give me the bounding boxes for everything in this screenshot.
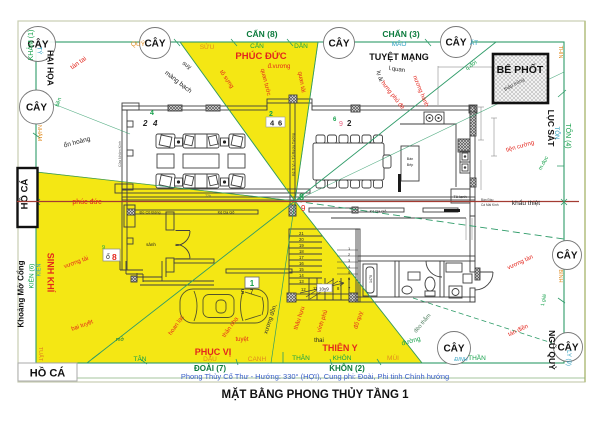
svg-text:16: 16 xyxy=(299,261,304,266)
svg-text:CÂY: CÂY xyxy=(328,37,349,50)
svg-text:10ỵ9: 10ỵ9 xyxy=(319,287,329,292)
svg-text:MÙI: MÙI xyxy=(387,353,399,362)
svg-text:DẬU: DẬU xyxy=(203,354,217,363)
svg-text:2: 2 xyxy=(347,119,352,128)
svg-text:19: 19 xyxy=(299,243,304,248)
svg-text:SỬU: SỬU xyxy=(200,42,215,51)
svg-text:BỂ PHỐT: BỂ PHỐT xyxy=(497,62,544,76)
svg-text:THÂN: THÂN xyxy=(292,353,310,362)
svg-text:MẶT BẰNG PHONG THỦY TẦNG 1: MẶT BẰNG PHONG THỦY TẦNG 1 xyxy=(222,388,410,401)
svg-text:BÍNH: BÍNH xyxy=(557,269,564,282)
svg-text:NGŨ QUỶ: NGŨ QUỶ xyxy=(547,330,558,370)
svg-text:HẠI HỌA: HẠI HỌA xyxy=(46,50,56,86)
svg-text:NHÂM: NHÂM xyxy=(36,125,43,142)
svg-text:PHÚC ĐỨC: PHÚC ĐỨC xyxy=(235,50,286,62)
svg-text:13: 13 xyxy=(299,279,304,284)
svg-text:TUYỆT MẠNG: TUYỆT MẠNG xyxy=(369,51,429,62)
svg-text:TUẤT: TUẤT xyxy=(37,347,44,362)
svg-text:12: 12 xyxy=(301,287,306,292)
svg-text:sảnh: sảnh xyxy=(146,242,156,247)
svg-text:Bàn Đầu: Bàn Đầu xyxy=(481,198,494,202)
svg-text:72h: 72h xyxy=(205,194,211,198)
svg-text:đ.vương: đ.vương xyxy=(268,64,291,70)
svg-text:HỒ CÁ: HỒ CÁ xyxy=(30,367,66,380)
svg-text:MÃO: MÃO xyxy=(392,39,407,48)
svg-text:17: 17 xyxy=(299,255,304,260)
svg-text:TÂN: TÂN xyxy=(134,354,147,363)
svg-text:QUÝ: QUÝ xyxy=(131,39,146,48)
svg-text:4: 4 xyxy=(152,119,158,128)
svg-text:Khoảng Mở Cổng: Khoảng Mở Cổng xyxy=(17,260,26,327)
svg-text:CANH: CANH xyxy=(248,356,267,363)
svg-text:15: 15 xyxy=(299,267,304,272)
svg-text:21: 21 xyxy=(299,231,304,236)
svg-text:6: 6 xyxy=(278,119,282,128)
svg-text:Kệ Da Gỗ: Kệ Da Gỗ xyxy=(370,209,387,214)
svg-text:Đồ Cũ Đóng: Đồ Cũ Đóng xyxy=(140,211,161,215)
svg-text:Cửa Nhôm Kính: Cửa Nhôm Kính xyxy=(118,141,122,167)
svg-text:1: 1 xyxy=(250,279,255,288)
svg-text:2: 2 xyxy=(142,119,148,128)
svg-text:TÝ: TÝ xyxy=(36,47,43,55)
svg-text:CẤN (8): CẤN (8) xyxy=(246,29,277,39)
svg-text:Tủ lạnh: Tủ lạnh xyxy=(453,194,466,199)
svg-text:Phong Thủy Cổ Thư - Hướng: 330: Phong Thủy Cổ Thư - Hướng: 330° (HỢI), C… xyxy=(181,372,449,381)
svg-text:khẩu thiệt: khẩu thiệt xyxy=(512,199,540,207)
svg-text:KHẢM (1): KHẢM (1) xyxy=(26,30,35,61)
svg-text:Kệ Ti Vi + Tủ Rượu Tường: Kệ Ti Vi + Tủ Rượu Tường xyxy=(292,133,296,176)
svg-text:Bàn: Bàn xyxy=(407,157,413,161)
svg-text:Bếp: Bếp xyxy=(407,163,413,167)
svg-text:9: 9 xyxy=(102,245,105,251)
svg-text:CÂY: CÂY xyxy=(445,36,466,49)
svg-text:Cá Mái Kính: Cá Mái Kính xyxy=(481,203,499,207)
svg-text:CHẤN (3): CHẤN (3) xyxy=(382,29,419,39)
svg-text:ổ: ổ xyxy=(106,253,110,261)
svg-text:ĐINH: ĐINH xyxy=(454,357,467,363)
svg-text:CÂY: CÂY xyxy=(26,101,47,114)
svg-text:20: 20 xyxy=(299,237,304,242)
svg-text:CÂY: CÂY xyxy=(556,249,577,262)
svg-text:CÂY: CÂY xyxy=(443,342,464,355)
svg-text:LY (9): LY (9) xyxy=(565,350,571,366)
svg-text:tuyệt: tuyệt xyxy=(235,337,248,343)
svg-text:9: 9 xyxy=(301,204,306,213)
svg-text:4: 4 xyxy=(150,110,154,117)
svg-text:9: 9 xyxy=(339,121,343,128)
svg-text:KHÔN: KHÔN xyxy=(333,353,352,362)
svg-text:2: 2 xyxy=(269,111,273,118)
svg-text:HỒ CÁ: HỒ CÁ xyxy=(19,179,31,210)
svg-text:Kệ Da Gỗ: Kệ Da Gỗ xyxy=(218,210,235,215)
svg-text:mở: mở xyxy=(116,336,125,343)
svg-text:18: 18 xyxy=(299,249,304,254)
svg-text:THÌN: THÌN xyxy=(557,46,564,59)
svg-text:1470: 1470 xyxy=(369,275,373,283)
svg-text:14: 14 xyxy=(299,273,304,278)
svg-text:CÂY: CÂY xyxy=(144,37,165,50)
svg-text:LỤC SÁT: LỤC SÁT xyxy=(546,110,556,148)
svg-text:8: 8 xyxy=(112,252,117,262)
svg-text:phúc đức: phúc đức xyxy=(72,199,102,206)
svg-text:THIÊN Y: THIÊN Y xyxy=(322,342,357,353)
svg-text:SINH KHÍ: SINH KHÍ xyxy=(46,253,56,293)
svg-text:8: 8 xyxy=(299,192,304,202)
svg-text:KIỀN: KIỀN xyxy=(36,264,43,277)
